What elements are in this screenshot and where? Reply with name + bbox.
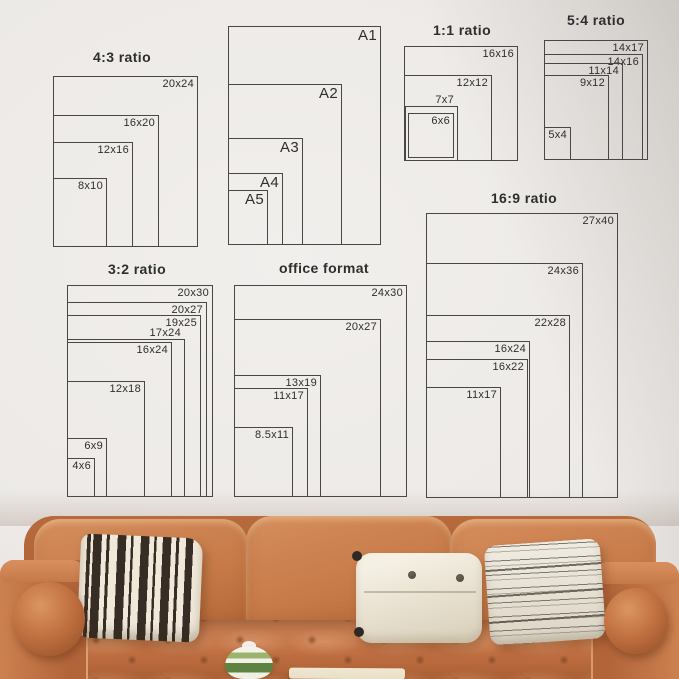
pillow-striped-gray (484, 538, 607, 646)
armrest-right-cap (593, 562, 679, 584)
bolster-pillow-left (13, 582, 85, 656)
pillow-white-buttons (356, 553, 482, 643)
poster-size-guide-scene: 4:3 ratio20x2416x2012x168x10A1A2A3A4A51:… (0, 0, 679, 679)
bolster-pillow-right (604, 588, 668, 654)
pillow-seam (364, 591, 476, 593)
pillow-pompom-bottom (354, 627, 364, 637)
pillow-button-left (408, 571, 416, 579)
pillow-pompom-top (352, 551, 362, 561)
armrest-left-cap (0, 560, 86, 582)
pillow-striped-black-white (77, 533, 203, 642)
pillow-button-right (456, 574, 464, 582)
sofa (0, 0, 679, 679)
decor-vase (225, 646, 273, 679)
table-edge (289, 668, 405, 679)
